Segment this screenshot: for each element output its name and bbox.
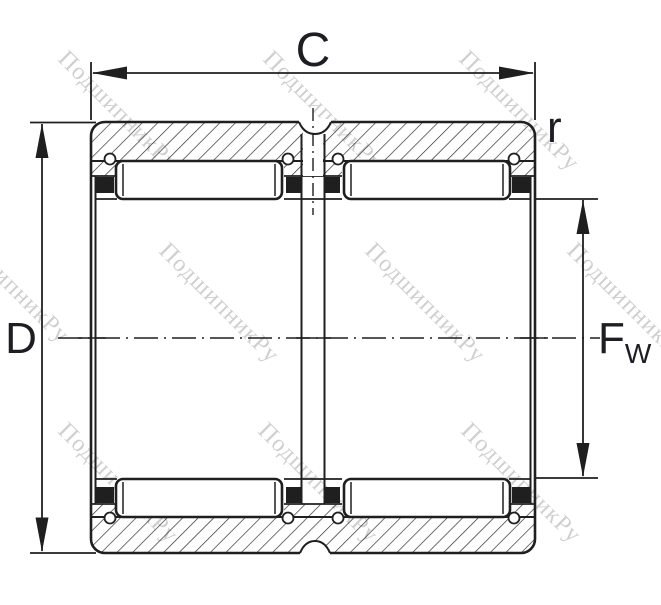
fw-main: F	[598, 314, 625, 363]
needle-roller-bottom-left	[116, 479, 282, 517]
needle-roller-top-right	[344, 161, 510, 199]
cage-block	[512, 177, 530, 193]
cage-block	[325, 487, 340, 503]
dimension-label-D: D	[5, 314, 37, 363]
cage-block	[512, 487, 530, 503]
cage-block	[96, 487, 114, 503]
needle-roller-bottom-right	[344, 479, 510, 517]
cage-block	[325, 177, 340, 193]
drawing-canvas: ПодшипникРу ПодшипникРу ПодшипникРу Подш…	[0, 0, 661, 605]
dimension-label-r: r	[547, 103, 562, 152]
dimension-label-C: C	[296, 24, 331, 77]
cage-block	[96, 177, 114, 193]
cage-block	[286, 487, 301, 503]
bearing-technical-drawing: ПодшипникРу ПодшипникРу ПодшипникРу Подш…	[0, 0, 661, 605]
fw-subscript: W	[625, 338, 652, 369]
needle-roller-top-left	[116, 161, 282, 199]
cage-block	[286, 177, 301, 193]
